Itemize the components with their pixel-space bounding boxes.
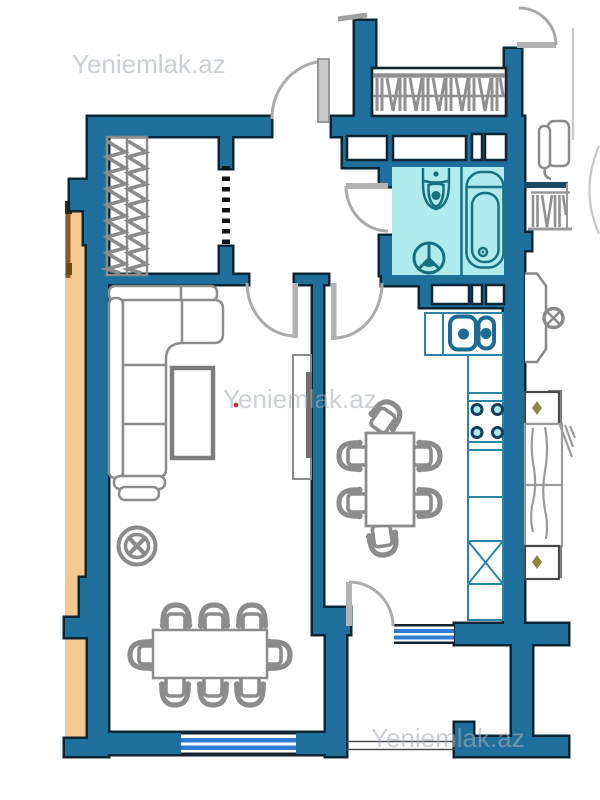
svg-text:Yeniemlak.az: Yeniemlak.az bbox=[72, 49, 226, 79]
svg-text:Yeniemlak.az: Yeniemlak.az bbox=[223, 384, 377, 414]
svg-text:Yeniemlak.az: Yeniemlak.az bbox=[371, 723, 525, 753]
